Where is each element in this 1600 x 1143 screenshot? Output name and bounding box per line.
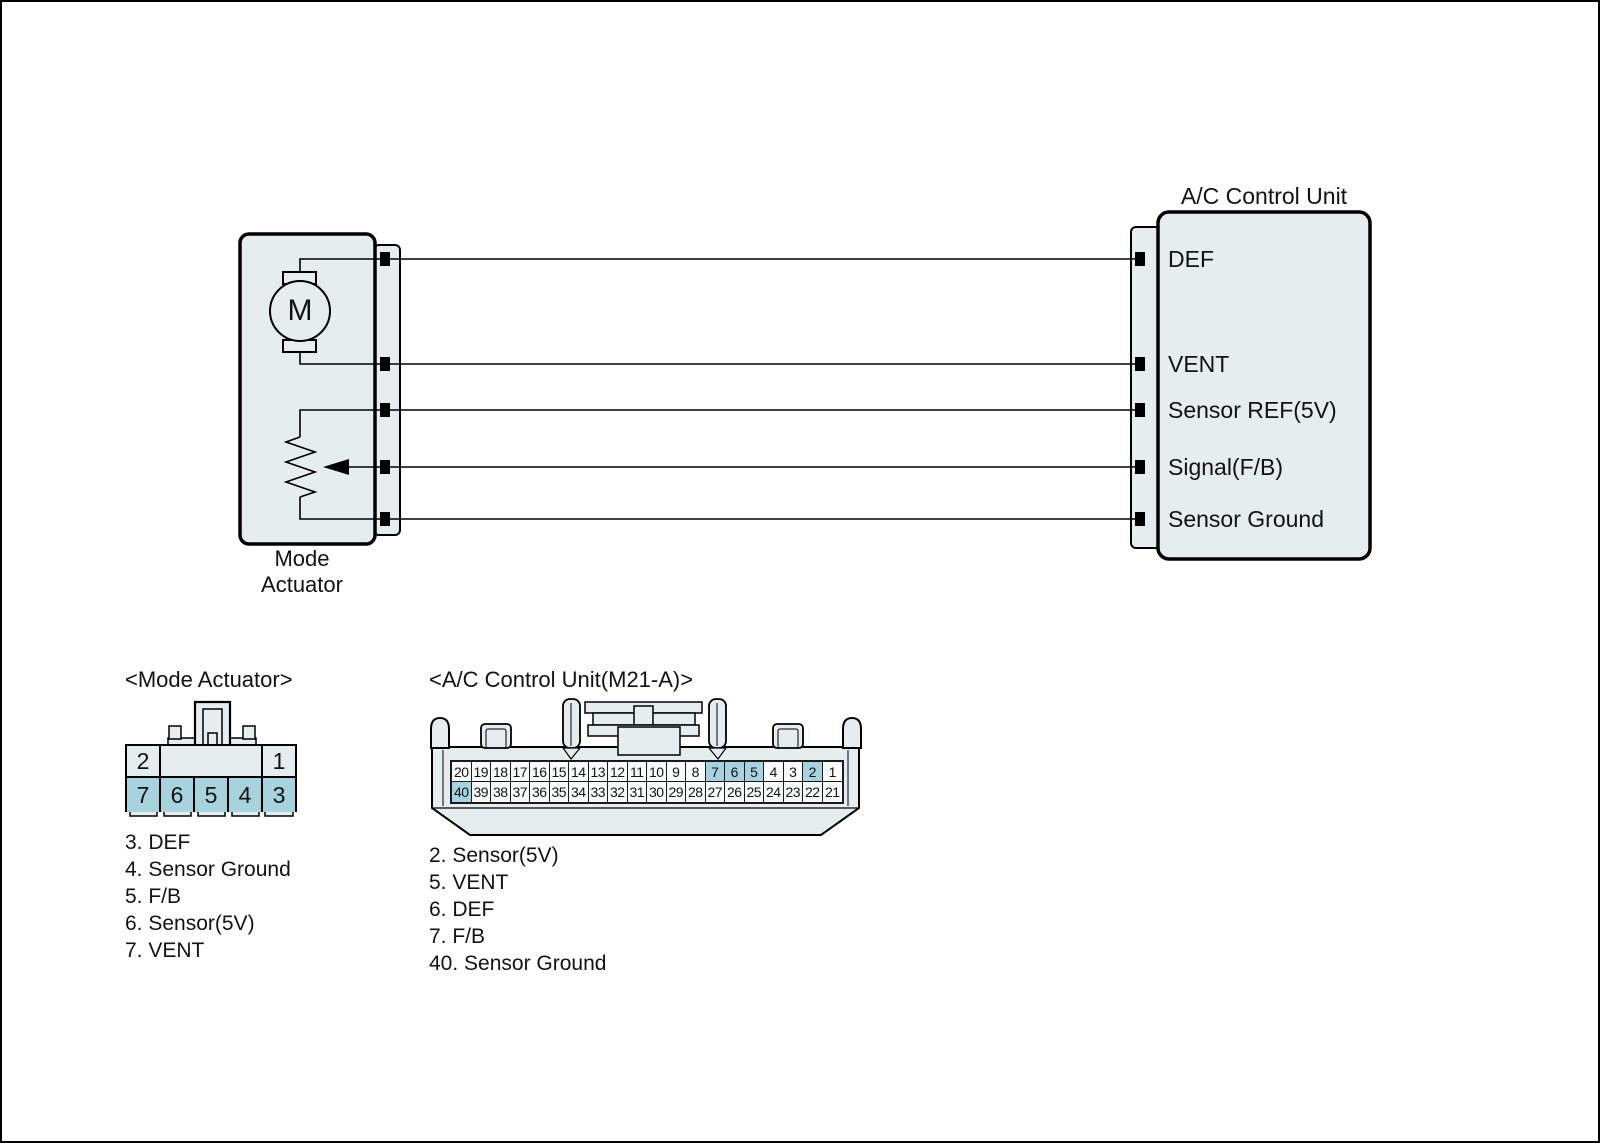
ac-connector-legend: 2. Sensor(5V) 5. VENT 6. DEF 7. F/B 40. … [429, 842, 606, 977]
wire-sensor-ref [300, 410, 1142, 437]
pin-cell: 21 [823, 782, 843, 802]
pin-cell: 3 [263, 778, 295, 812]
pin-cell: 5 [195, 778, 229, 812]
ac-connector-top-row: 2019181716151413121110987654321 [452, 762, 842, 782]
connector-pins [380, 252, 1145, 526]
pin-icon [1135, 357, 1145, 371]
pin-cell: 30 [647, 782, 667, 802]
wire-sensor-ground [300, 497, 1142, 519]
pin-cell: 5 [745, 762, 765, 782]
pin-cell: 9 [667, 762, 687, 782]
pin-icon [380, 512, 390, 526]
pin-cell: 1 [261, 746, 295, 776]
pin-cell: 38 [491, 782, 511, 802]
pin-cell: 27 [706, 782, 726, 802]
pin-label-signal-fb: Signal(F/B) [1168, 454, 1283, 480]
pin-cell: 24 [764, 782, 784, 802]
housing-hook [431, 718, 449, 748]
pin-cell: 2 [127, 746, 161, 776]
pin-cell: 18 [491, 762, 511, 782]
pin-cell: 7 [706, 762, 726, 782]
pin-cell: 11 [628, 762, 648, 782]
pin-icon [1135, 403, 1145, 417]
pin-cell: 1 [823, 762, 843, 782]
housing-tab [169, 726, 181, 739]
legend-line: 40. Sensor Ground [429, 950, 606, 977]
pin-icon [1135, 460, 1145, 474]
mode-caption-line2: Actuator [222, 572, 382, 598]
pin-cell: 4 [764, 762, 784, 782]
mode-connector-legend: 3. DEF 4. Sensor Ground 5. F/B 6. Sensor… [125, 829, 291, 964]
legend-line: 2. Sensor(5V) [429, 842, 606, 869]
pin-cell: 10 [647, 762, 667, 782]
pin-label-vent: VENT [1168, 351, 1229, 377]
pin-cell: 6 [725, 762, 745, 782]
ac-connector-pin-grid: 2019181716151413121110987654321 40393837… [450, 760, 844, 804]
pin-row-spacer [161, 746, 261, 776]
pin-icon [1135, 512, 1145, 526]
pin-cell: 31 [628, 782, 648, 802]
pin-icon [1135, 252, 1145, 266]
pin-cell: 33 [589, 782, 609, 802]
legend-line: 4. Sensor Ground [125, 856, 291, 883]
mode-actuator-caption: Mode Actuator [222, 546, 382, 598]
wiring-diagram-page: A/C Control Unit DEF VENT Sensor REF(5V)… [0, 0, 1600, 1143]
pin-cell: 12 [608, 762, 628, 782]
legend-line: 6. DEF [429, 896, 606, 923]
pin-cell: 37 [511, 782, 531, 802]
pin-icon [380, 252, 390, 266]
pin-cell: 28 [686, 782, 706, 802]
pin-cell: 29 [667, 782, 687, 802]
ac-control-unit-title: A/C Control Unit [1158, 183, 1370, 210]
pin-cell: 34 [569, 782, 589, 802]
pin-cell: 15 [550, 762, 570, 782]
pin-cell: 26 [725, 782, 745, 802]
pin-cell: 20 [452, 762, 472, 782]
housing-hook [843, 718, 861, 748]
legend-line: 3. DEF [125, 829, 291, 856]
motor-label: M [270, 294, 330, 328]
mode-connector-pin-grid: 2 1 76543 [125, 744, 297, 812]
pin-cell: 4 [229, 778, 263, 812]
legend-line: 5. F/B [125, 883, 291, 910]
pin-cell: 2 [803, 762, 823, 782]
mode-caption-line1: Mode [222, 546, 382, 572]
wires [300, 259, 1142, 519]
pin-icon [380, 403, 390, 417]
pin-cell: 23 [784, 782, 804, 802]
ac-connector-bottom-row: 4039383736353433323130292827262524232221 [452, 782, 842, 802]
pin-cell: 6 [161, 778, 195, 812]
housing-tab [243, 726, 255, 739]
latch-notch [634, 706, 653, 725]
legend-line: 7. F/B [429, 923, 606, 950]
pin-cell: 25 [745, 782, 765, 802]
pin-cell: 19 [472, 762, 492, 782]
pin-cell: 13 [589, 762, 609, 782]
pin-cell: 8 [686, 762, 706, 782]
legend-line: 6. Sensor(5V) [125, 910, 291, 937]
pin-cell: 14 [569, 762, 589, 782]
pin-cell: 36 [530, 782, 550, 802]
pin-label-sensor-ground: Sensor Ground [1168, 506, 1324, 532]
mode-connector-top-row: 2 1 [127, 746, 295, 778]
pin-label-sensor-ref: Sensor REF(5V) [1168, 397, 1337, 423]
pin-cell: 16 [530, 762, 550, 782]
pin-cell: 32 [608, 782, 628, 802]
legend-line: 5. VENT [429, 869, 606, 896]
pin-cell: 22 [803, 782, 823, 802]
pin-label-def: DEF [1168, 246, 1214, 272]
pin-cell: 40 [452, 782, 472, 802]
wire-def [300, 259, 1142, 272]
legend-line: 7. VENT [125, 937, 291, 964]
mode-connector-bottom-row: 76543 [127, 778, 295, 812]
pin-cell: 3 [784, 762, 804, 782]
wire-vent [300, 352, 1142, 364]
latch-block [618, 727, 680, 755]
pin-icon [380, 357, 390, 371]
pin-cell: 35 [550, 782, 570, 802]
pin-cell: 7 [127, 778, 161, 812]
ac-connector-title: <A/C Control Unit(M21-A)> [429, 667, 693, 693]
pin-icon [380, 460, 390, 474]
mode-connector-title: <Mode Actuator> [125, 667, 293, 693]
mode-actuator-connector-strip [374, 245, 400, 535]
pin-cell: 39 [472, 782, 492, 802]
pin-cell: 17 [511, 762, 531, 782]
